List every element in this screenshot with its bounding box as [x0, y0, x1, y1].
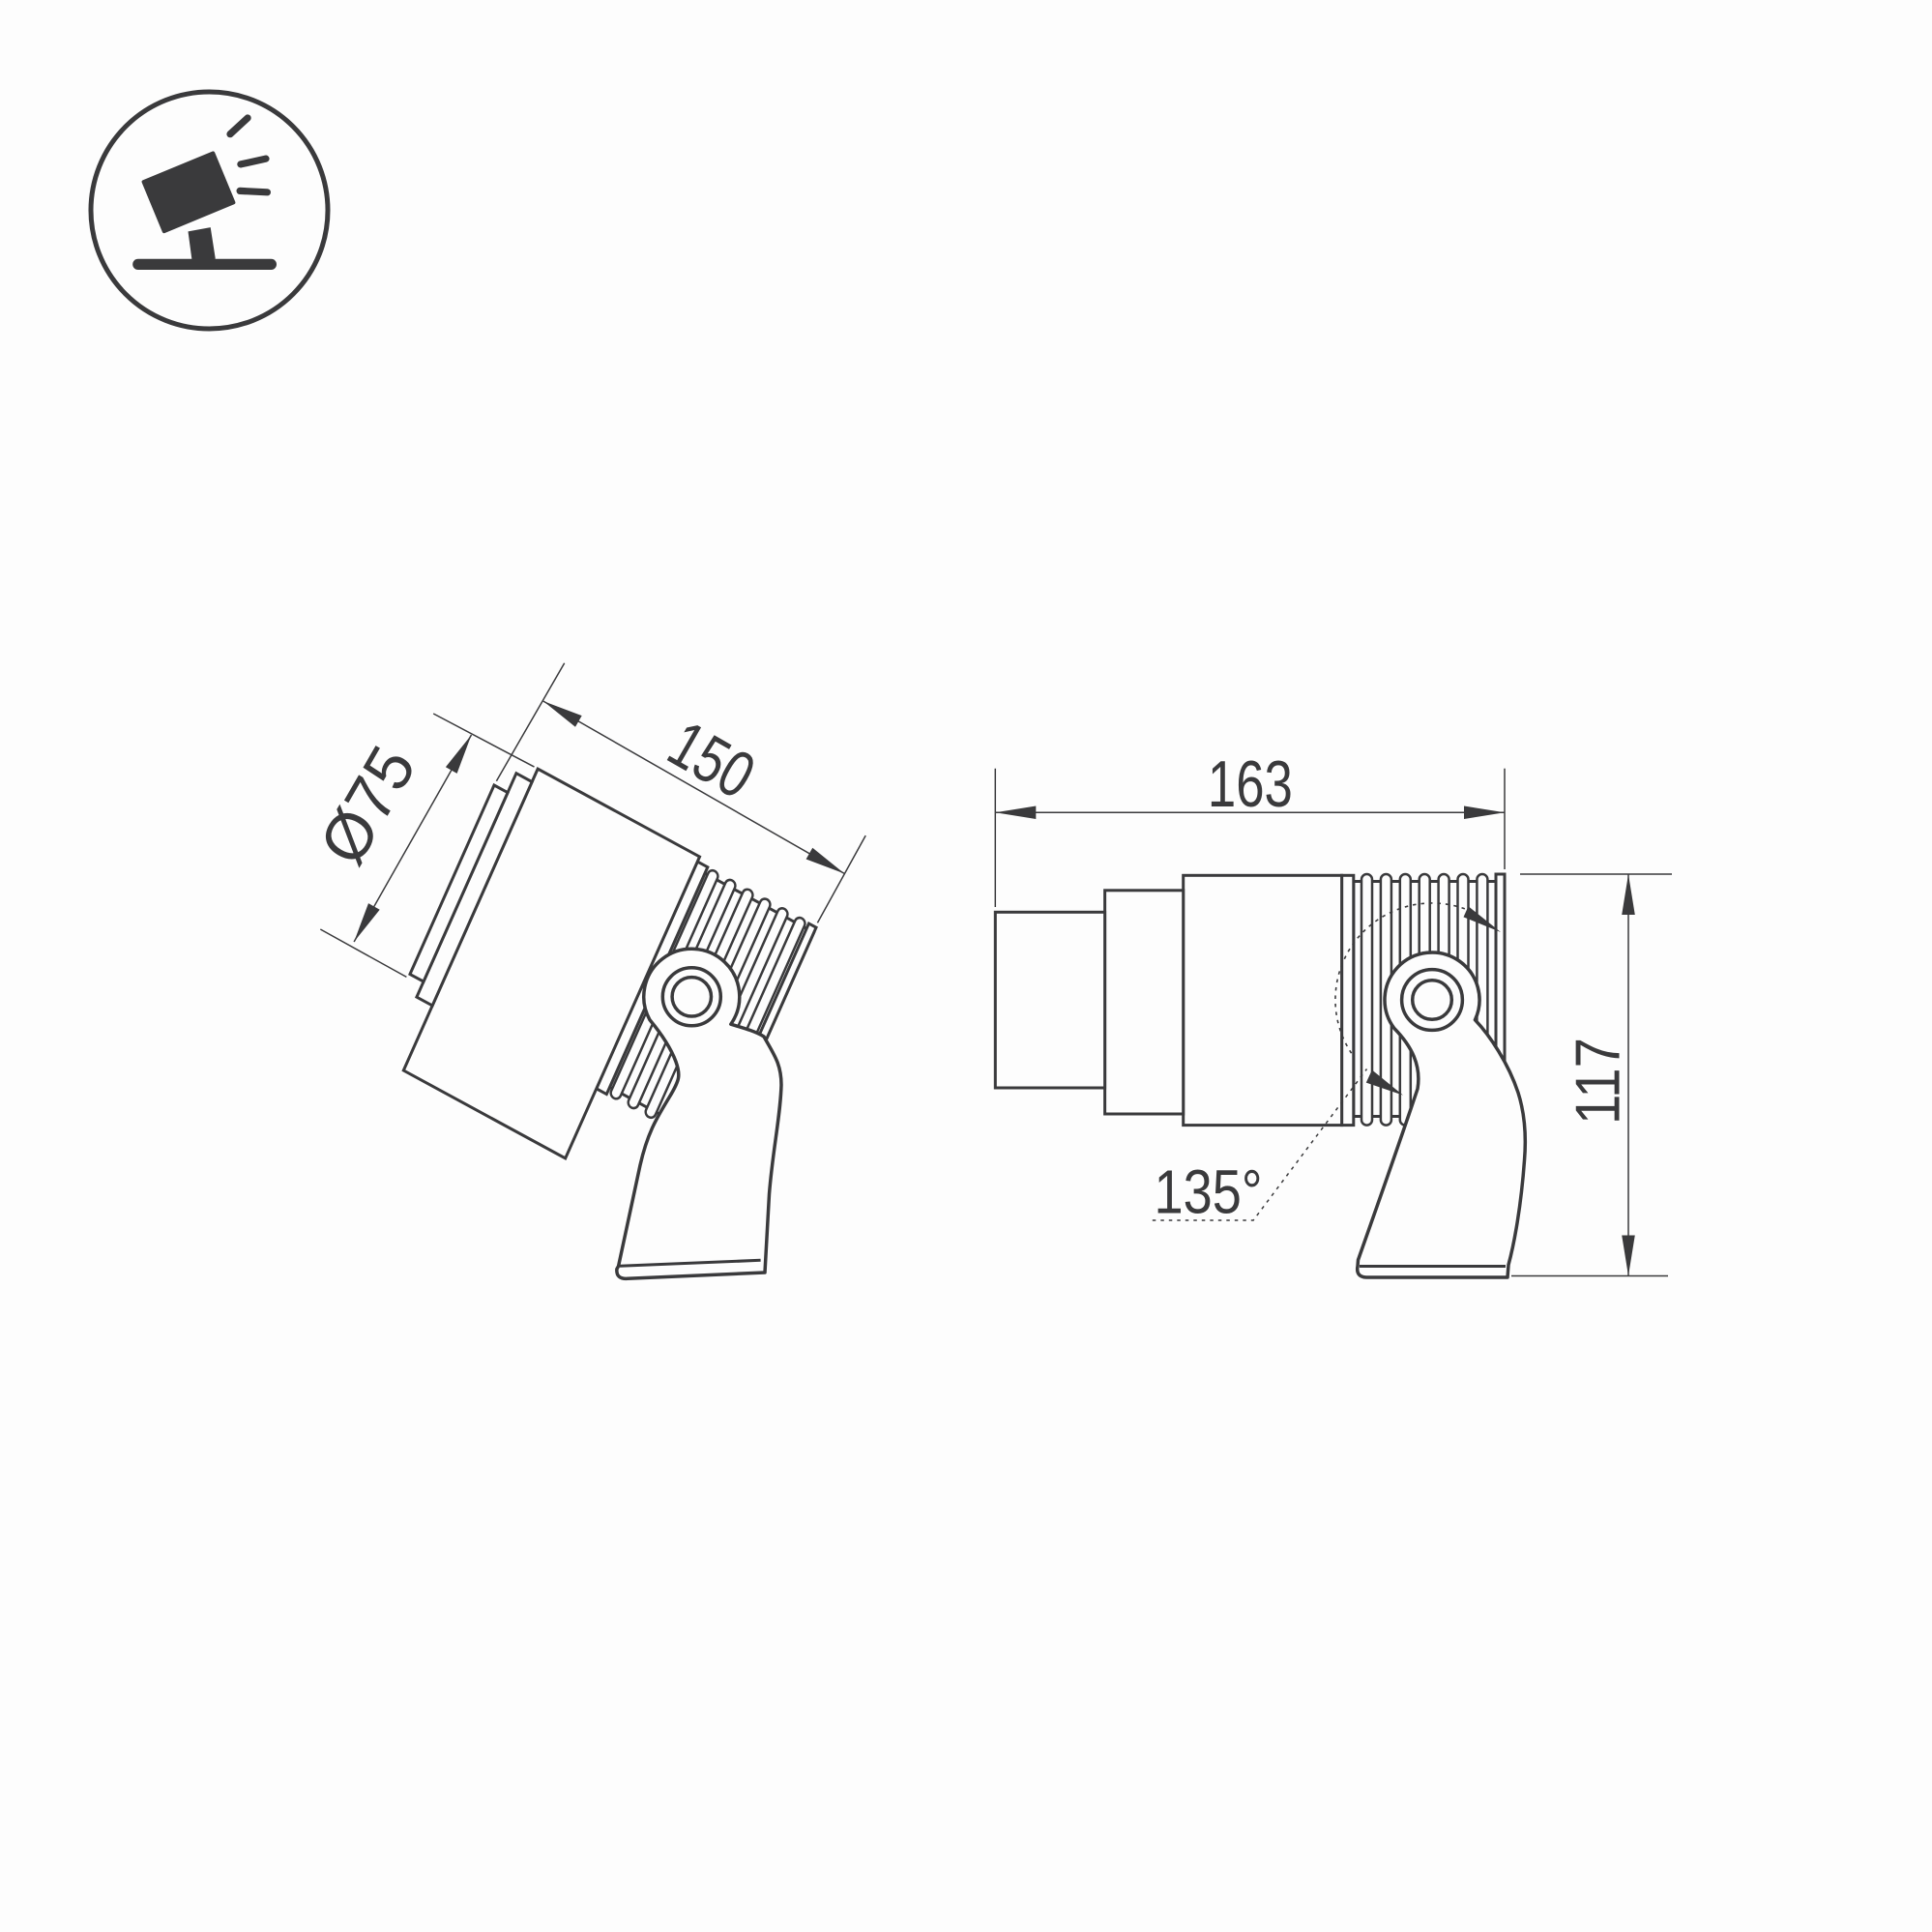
svg-text:163: 163 — [1208, 747, 1293, 821]
svg-text:117: 117 — [1563, 1038, 1633, 1125]
svg-text:135°: 135° — [1155, 1157, 1263, 1227]
